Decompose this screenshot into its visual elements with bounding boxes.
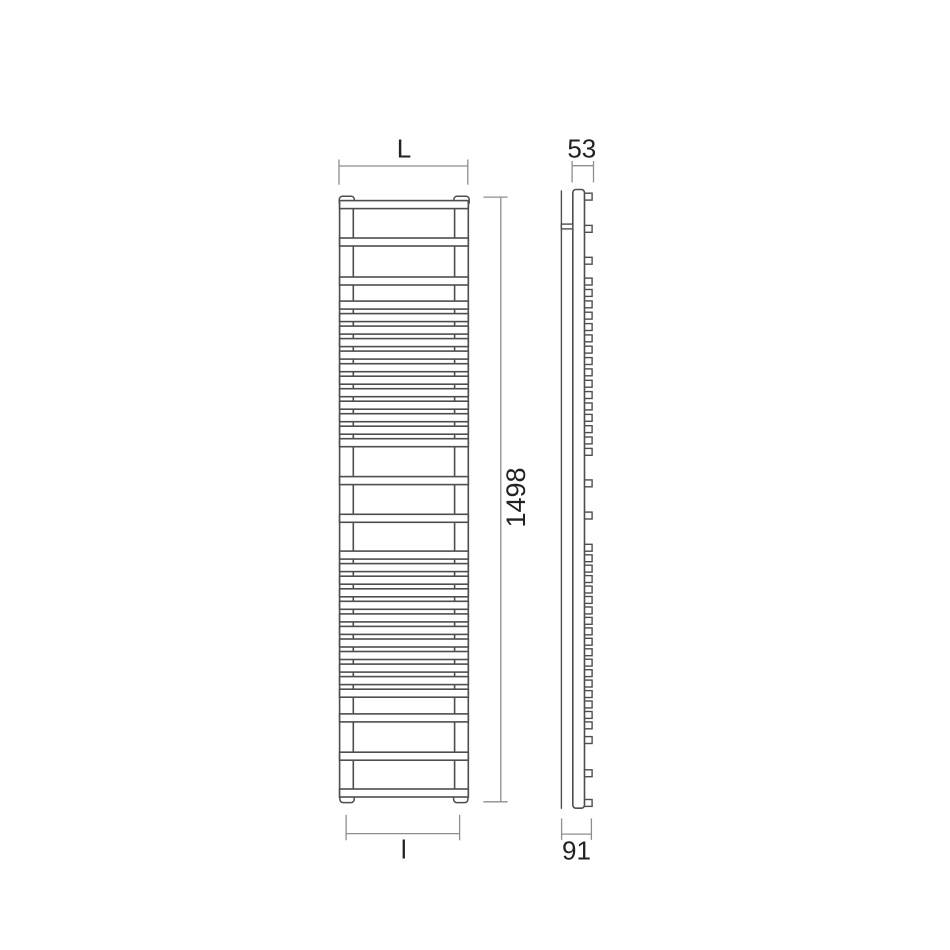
svg-text:l: l — [401, 834, 407, 864]
svg-text:91: 91 — [562, 835, 591, 865]
svg-text:1498: 1498 — [501, 467, 531, 527]
svg-text:53: 53 — [567, 133, 596, 163]
svg-text:L: L — [397, 134, 411, 164]
